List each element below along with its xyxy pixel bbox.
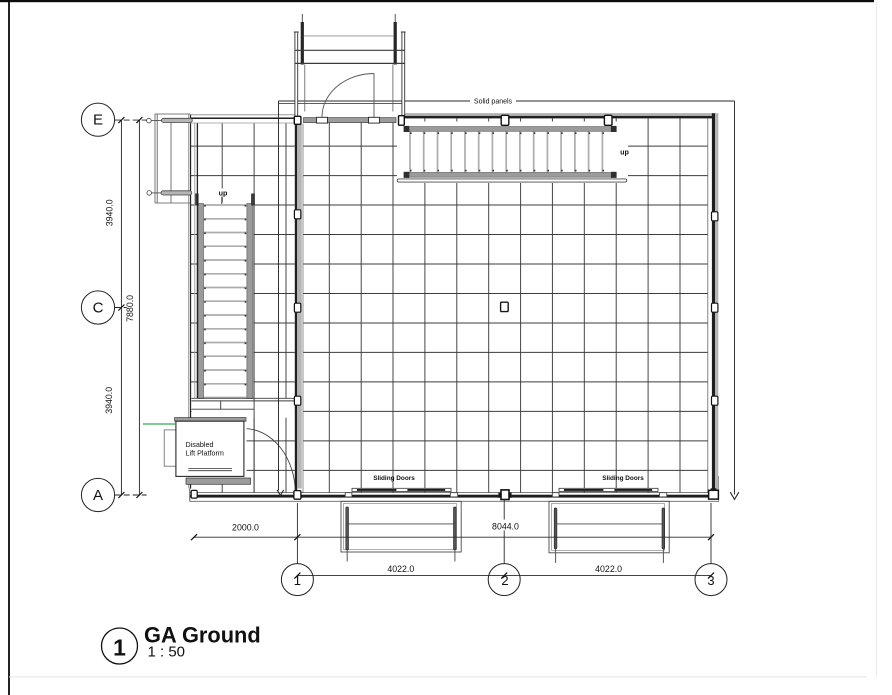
svg-text:4022.0: 4022.0 (387, 564, 414, 574)
svg-text:3940.0: 3940.0 (105, 199, 115, 226)
svg-text:Sliding Doors: Sliding Doors (602, 475, 644, 482)
svg-text:8044.0: 8044.0 (492, 521, 519, 531)
svg-text:1: 1 (113, 634, 126, 660)
svg-text:Sliding Doors: Sliding Doors (373, 475, 415, 482)
svg-text:7880.0: 7880.0 (125, 295, 135, 322)
svg-text:Lift Platform: Lift Platform (186, 449, 224, 458)
svg-text:C: C (93, 299, 104, 316)
svg-text:Solid panels: Solid panels (474, 99, 513, 106)
svg-text:3940.0: 3940.0 (104, 387, 114, 414)
svg-text:up: up (219, 189, 228, 198)
svg-text:3: 3 (707, 573, 714, 588)
svg-text:A: A (93, 487, 103, 504)
svg-text:2: 2 (501, 573, 508, 588)
svg-text:2000.0: 2000.0 (232, 523, 259, 533)
svg-text:1: 1 (294, 573, 301, 588)
svg-text:E: E (93, 112, 103, 129)
svg-text:up: up (620, 147, 629, 156)
svg-text:4022.0: 4022.0 (595, 564, 622, 574)
svg-text:1 : 50: 1 : 50 (148, 644, 186, 661)
